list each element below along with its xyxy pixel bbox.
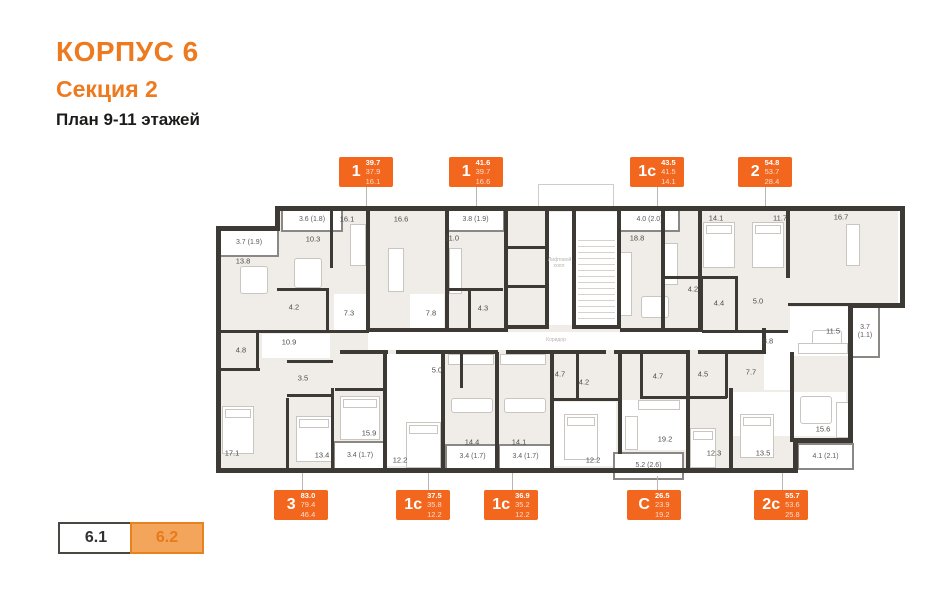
balcony: 4.1 (2.1) bbox=[797, 443, 854, 470]
apartment-badge-top-1[interactable]: 1 39.737.916.1 bbox=[339, 157, 393, 187]
room-label: 16.7 bbox=[834, 213, 849, 222]
stairwell-wall bbox=[617, 208, 621, 329]
furniture-sofa bbox=[625, 416, 638, 450]
furniture-bed bbox=[564, 414, 598, 460]
apartment-type: 2c bbox=[762, 497, 780, 513]
balcony-label: 3.7 (1.9) bbox=[236, 239, 262, 247]
apartment-badge-top-2[interactable]: 1 41.639.716.6 bbox=[449, 157, 503, 187]
room-label: 18.8 bbox=[630, 234, 645, 243]
room-label: 7.8 bbox=[426, 309, 436, 318]
area-total: 37.5 bbox=[427, 491, 442, 500]
apartment-badge-bottom-5[interactable]: 2c 55.753.625.8 bbox=[754, 490, 808, 520]
area-room: 25.8 bbox=[785, 510, 800, 519]
apartment-badge-bottom-2[interactable]: 1c 37.535.812.2 bbox=[396, 490, 450, 520]
badge-leader-line bbox=[476, 187, 477, 206]
wall bbox=[640, 354, 643, 398]
room-label: 12.2 bbox=[393, 456, 408, 465]
room-label: 19.2 bbox=[658, 435, 673, 444]
wall bbox=[216, 468, 798, 473]
area-living: 53.6 bbox=[785, 500, 800, 509]
balcony-label: 3.8 (1.9) bbox=[462, 216, 488, 224]
stairs-icon bbox=[578, 240, 615, 320]
wall bbox=[661, 206, 665, 332]
wall bbox=[640, 396, 686, 399]
area-living: 35.2 bbox=[515, 500, 530, 509]
wall bbox=[330, 210, 333, 268]
wall bbox=[663, 276, 735, 279]
apartment-type: 1c bbox=[638, 164, 656, 180]
room-label: 15.9 bbox=[362, 429, 377, 438]
area-living: 53.7 bbox=[765, 167, 780, 176]
building-title: КОРПУС 6 bbox=[56, 36, 199, 68]
plan-subtitle: План 9-11 этажей bbox=[56, 110, 200, 130]
elevator-shaft-wall bbox=[506, 285, 545, 288]
room-label: 15.6 bbox=[816, 425, 831, 434]
balcony-label: 4.0 (2.0) bbox=[636, 216, 662, 224]
room-label: 4.5 bbox=[698, 370, 708, 379]
apartment-type: C bbox=[638, 497, 650, 513]
wall bbox=[286, 398, 289, 470]
area-room: 14.1 bbox=[661, 177, 676, 186]
wall bbox=[366, 206, 370, 332]
area-total: 36.9 bbox=[515, 491, 530, 500]
room-label: 11.5 bbox=[826, 327, 840, 336]
room-label: 7.7 bbox=[746, 368, 756, 377]
room-label: 14.1 bbox=[512, 438, 527, 447]
wall bbox=[366, 328, 508, 332]
section-selector-6-2[interactable]: 6.2 bbox=[130, 522, 204, 554]
room-label: 4.2 bbox=[579, 378, 589, 387]
area-room: 19.2 bbox=[655, 510, 670, 519]
kitchen-counter bbox=[798, 343, 848, 354]
room-label: 4.7 bbox=[555, 370, 565, 379]
wall bbox=[620, 328, 702, 332]
furniture-bed bbox=[222, 406, 254, 454]
room-label: 13.4 bbox=[315, 451, 330, 460]
kitchen-counter bbox=[638, 400, 680, 410]
room-label: 4.8 bbox=[236, 346, 246, 355]
room-label: 17.1 bbox=[225, 449, 240, 458]
balcony: 3.8 (1.9) bbox=[446, 208, 505, 232]
wall bbox=[445, 206, 449, 332]
area-total: 54.8 bbox=[765, 158, 780, 167]
wall bbox=[335, 388, 383, 391]
area-total: 41.6 bbox=[476, 158, 491, 167]
apartment-badge-top-4[interactable]: 2 54.853.728.4 bbox=[738, 157, 792, 187]
badge-leader-line bbox=[302, 473, 303, 490]
badge-leader-line bbox=[782, 473, 783, 490]
room-label: 13.8 bbox=[236, 257, 251, 266]
area-room: 12.2 bbox=[515, 510, 530, 519]
room-label: 14.1 bbox=[709, 214, 724, 223]
wall bbox=[383, 352, 387, 470]
room-label: 4.7 bbox=[653, 372, 663, 381]
wall bbox=[218, 330, 278, 333]
kitchen-counter bbox=[620, 252, 632, 316]
balcony: 3.7 (1.9) bbox=[219, 229, 279, 257]
elevator-shaft-wall bbox=[504, 325, 549, 329]
room-label: 4.3 bbox=[478, 304, 488, 313]
furniture-table bbox=[504, 398, 546, 413]
room-label: 10.3 bbox=[306, 235, 321, 244]
elevator-shaft-wall bbox=[506, 246, 545, 249]
wall bbox=[729, 388, 733, 470]
wall bbox=[460, 354, 463, 388]
furniture-table bbox=[800, 396, 832, 424]
room-label: 8.8 bbox=[763, 337, 773, 346]
balcony: 3.6 (1.8) bbox=[281, 208, 343, 232]
wall bbox=[700, 276, 703, 332]
apartment-type: 2 bbox=[751, 164, 760, 180]
balcony-label: 3.7 (1.1) bbox=[858, 324, 872, 339]
room-label: 11.7 bbox=[773, 214, 787, 223]
room-label: 13.5 bbox=[756, 449, 771, 458]
wall bbox=[698, 350, 764, 354]
wall bbox=[396, 350, 498, 354]
section-selector-6-1[interactable]: 6.1 bbox=[58, 522, 134, 554]
room-label: 3.5 bbox=[298, 374, 308, 383]
wall bbox=[495, 352, 499, 470]
apartment-type: 1c bbox=[404, 497, 422, 513]
section-title: Секция 2 bbox=[56, 76, 158, 103]
apartment-type: 1 bbox=[352, 164, 361, 180]
wall bbox=[686, 352, 690, 470]
wall bbox=[326, 288, 329, 332]
wall bbox=[340, 350, 388, 354]
wall bbox=[848, 303, 853, 443]
wall bbox=[702, 330, 788, 333]
wall bbox=[690, 396, 727, 399]
wall bbox=[735, 276, 738, 332]
balcony: 5.2 (2.6) bbox=[613, 452, 684, 480]
area-total: 83.0 bbox=[301, 491, 316, 500]
wall bbox=[550, 352, 554, 470]
area-room: 46.4 bbox=[301, 510, 316, 519]
balcony-label: 3.4 (1.7) bbox=[512, 453, 538, 461]
wall bbox=[287, 360, 333, 363]
furniture-table bbox=[451, 398, 493, 413]
wall bbox=[554, 398, 618, 401]
balcony: 4.0 (2.0) bbox=[619, 208, 680, 232]
floor-plan-page: КОРПУС 6 Секция 2 План 9-11 этажей 3.6 (… bbox=[0, 0, 941, 600]
furniture-table bbox=[294, 258, 322, 288]
room-label: 5.0 bbox=[432, 366, 442, 375]
elevator-shaft-wall bbox=[504, 208, 508, 329]
apartment-badge-bottom-1[interactable]: 3 83.079.446.4 bbox=[274, 490, 328, 520]
wall bbox=[795, 438, 853, 443]
area-total: 55.7 bbox=[785, 491, 800, 500]
area-room: 16.1 bbox=[366, 177, 381, 186]
room-label: 12.2 bbox=[586, 456, 601, 465]
balcony: 3.4 (1.7) bbox=[445, 444, 500, 470]
balcony: 3.4 (1.7) bbox=[498, 444, 553, 470]
apartment-type: 3 bbox=[287, 497, 296, 513]
balcony: 3.4 (1.7) bbox=[333, 441, 387, 470]
apartment-badge-bottom-3[interactable]: 1c 36.935.212.2 bbox=[484, 490, 538, 520]
room-label: 16.6 bbox=[394, 215, 409, 224]
stairwell-wall bbox=[572, 208, 576, 329]
balcony-label: 3.6 (1.8) bbox=[299, 216, 325, 224]
apartment-badge-top-3[interactable]: 1c 43.541.514.1 bbox=[630, 157, 684, 187]
wall bbox=[900, 206, 905, 308]
stairwell-wall bbox=[572, 325, 621, 329]
balcony-label: 3.4 (1.7) bbox=[459, 453, 485, 461]
badge-leader-line bbox=[657, 187, 658, 206]
area-living: 37.9 bbox=[366, 167, 381, 176]
kitchen-counter bbox=[500, 354, 546, 365]
wall bbox=[256, 332, 259, 370]
balcony: 3.7 (1.1) bbox=[850, 306, 880, 358]
area-living: 79.4 bbox=[301, 500, 316, 509]
area-living: 23.9 bbox=[655, 500, 670, 509]
wall bbox=[790, 352, 794, 442]
room-label: 10.9 bbox=[282, 338, 297, 347]
badge-leader-line bbox=[366, 187, 367, 206]
wall bbox=[447, 288, 503, 291]
wall bbox=[331, 388, 334, 470]
balcony-label: 3.4 (1.7) bbox=[347, 452, 373, 460]
area-total: 39.7 bbox=[366, 158, 381, 167]
area-room: 12.2 bbox=[427, 510, 442, 519]
area-room: 16.6 bbox=[476, 177, 491, 186]
room-label: 12.3 bbox=[707, 449, 722, 458]
furniture-bed bbox=[703, 222, 735, 268]
room-label: 11.0 bbox=[445, 234, 459, 243]
furniture-sofa bbox=[350, 224, 366, 266]
lift-lobby-label: Лифтовой холл bbox=[548, 257, 570, 269]
room-label: 4.2 bbox=[289, 303, 299, 312]
badge-leader-line bbox=[657, 476, 658, 490]
furniture-bed bbox=[406, 422, 441, 468]
badge-leader-line bbox=[512, 473, 513, 490]
room-label: 5.0 bbox=[753, 297, 763, 306]
room-label: 4.4 bbox=[714, 299, 724, 308]
area-living: 41.5 bbox=[661, 167, 676, 176]
wall bbox=[287, 394, 333, 397]
apartment-type: 1c bbox=[492, 497, 510, 513]
wall bbox=[788, 303, 850, 306]
wall bbox=[216, 226, 221, 473]
wall bbox=[218, 368, 260, 371]
wall bbox=[277, 330, 369, 333]
area-living: 35.8 bbox=[427, 500, 442, 509]
corridor-label: Коридор bbox=[546, 337, 566, 343]
area-total: 26.5 bbox=[655, 491, 670, 500]
room-label: 7.3 bbox=[344, 309, 354, 318]
furniture-sofa bbox=[846, 224, 860, 266]
wall bbox=[793, 438, 798, 472]
wall bbox=[468, 288, 471, 332]
area-total: 43.5 bbox=[661, 158, 676, 167]
furniture-sofa bbox=[388, 248, 404, 292]
furniture-table bbox=[240, 266, 268, 294]
area-room: 28.4 bbox=[765, 177, 780, 186]
wall bbox=[850, 303, 905, 308]
apartment-badge-bottom-4[interactable]: C 26.523.919.2 bbox=[627, 490, 681, 520]
room-label: 14.4 bbox=[465, 438, 480, 447]
wall bbox=[216, 226, 278, 231]
area-living: 39.7 bbox=[476, 167, 491, 176]
balcony-label: 4.1 (2.1) bbox=[812, 453, 838, 461]
apartment-type: 1 bbox=[462, 164, 471, 180]
wall bbox=[614, 350, 690, 354]
kitchen-counter bbox=[448, 354, 494, 365]
badge-leader-line bbox=[765, 187, 766, 206]
wall bbox=[618, 352, 622, 454]
room-label: 4.2 bbox=[688, 285, 698, 294]
wall bbox=[506, 350, 606, 354]
furniture-bed bbox=[752, 222, 784, 268]
badge-leader-line bbox=[428, 473, 429, 490]
room-label: 16.1 bbox=[340, 215, 355, 224]
wall bbox=[277, 288, 329, 291]
wall bbox=[725, 354, 728, 398]
